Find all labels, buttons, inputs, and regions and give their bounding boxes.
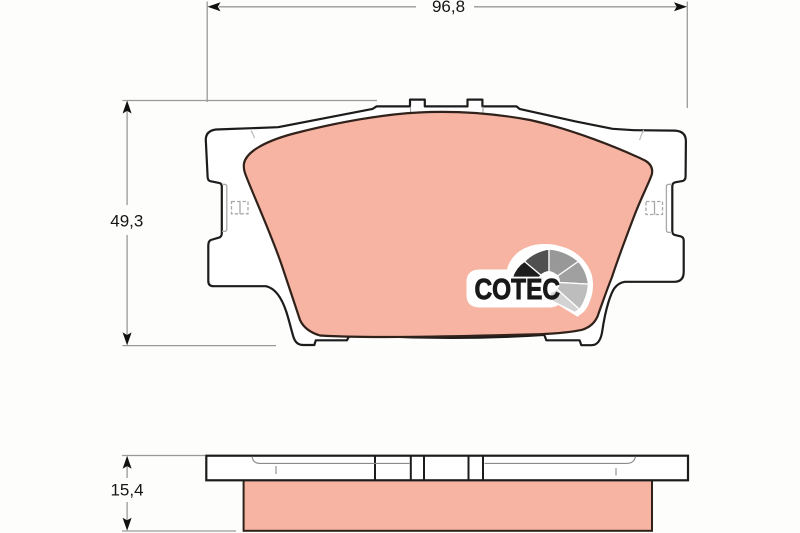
svg-text:49,3: 49,3 (110, 212, 143, 231)
svg-text:15,4: 15,4 (110, 481, 143, 500)
svg-text:96,8: 96,8 (432, 0, 465, 16)
svg-text:COTEC: COTEC (475, 274, 561, 306)
